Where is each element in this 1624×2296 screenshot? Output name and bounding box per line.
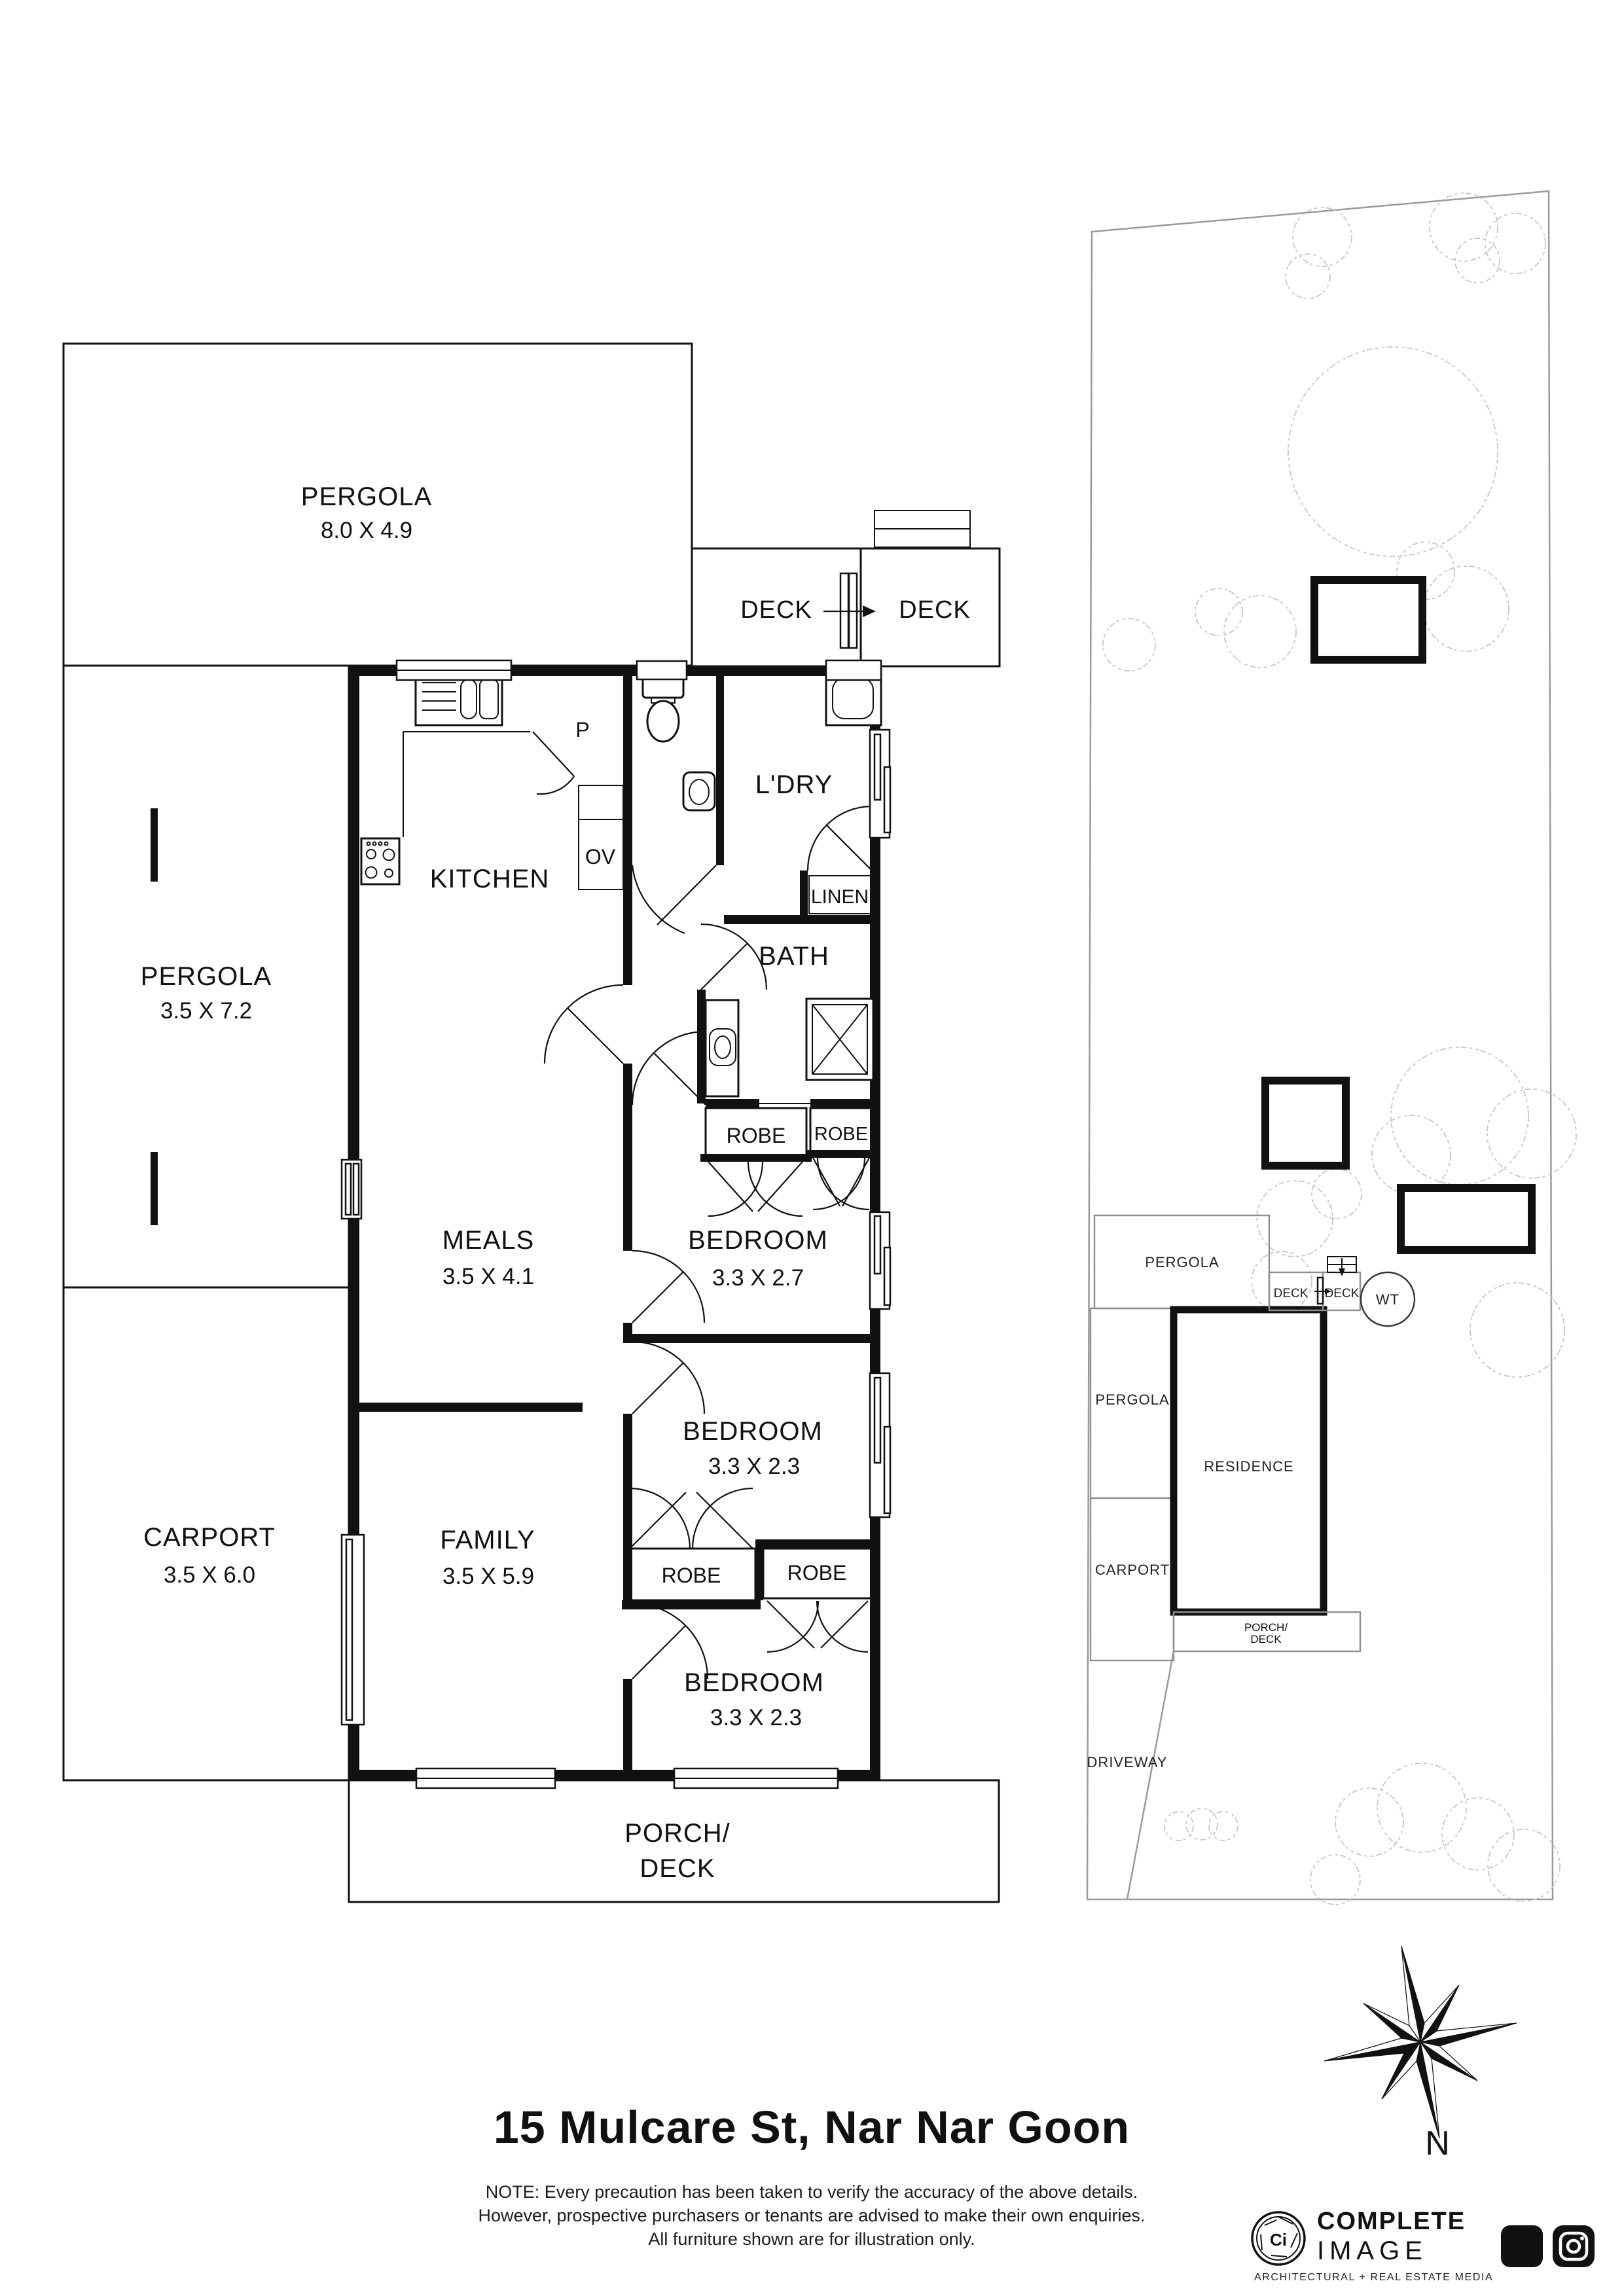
vanity-wall — [697, 990, 706, 1103]
site-deck-right-label: DECK — [1325, 1287, 1360, 1300]
bedroom3-label: BEDROOM — [684, 1668, 824, 1697]
window — [826, 660, 881, 680]
tree-canopy — [1470, 1283, 1564, 1377]
water-tank-label: WT — [1376, 1291, 1399, 1308]
pergola-left-dims: 3.5 X 7.2 — [160, 998, 252, 1024]
linen-label: LINEN — [811, 886, 869, 908]
tree-canopy — [1424, 566, 1509, 651]
carport-label: CARPORT — [143, 1523, 276, 1552]
lot-boundary — [1087, 191, 1553, 1899]
disclaimer-note: NOTE: Every precaution has been taken to… — [478, 2182, 1145, 2249]
sliding-window — [875, 1378, 880, 1463]
logo-brand-top: COMPLETE — [1317, 2208, 1466, 2235]
tree-canopy — [1335, 1788, 1403, 1856]
porch-label-line1: PORCH/ — [624, 1819, 731, 1848]
bedroom3-dims: 3.3 X 2.3 — [710, 1705, 802, 1731]
pantry-label: P — [575, 718, 589, 742]
laundry-label: L'DRY — [755, 770, 833, 799]
tree-canopy — [1487, 1089, 1576, 1178]
logo-monogram: Ci — [1270, 2230, 1287, 2250]
tree-canopy — [1377, 1763, 1466, 1852]
bedroom2-label: BEDROOM — [683, 1417, 823, 1446]
note-line-2: However, prospective purchasers or tenan… — [478, 2206, 1145, 2225]
pergola-post — [151, 1152, 158, 1225]
site-porch-label-line1: PORCH/ — [1244, 1621, 1288, 1634]
tree-canopy — [1372, 1115, 1451, 1194]
bedroom1-label: BEDROOM — [688, 1226, 828, 1255]
pergola-top-label: PERGOLA — [301, 482, 432, 511]
facebook-icon[interactable]: f — [1501, 2225, 1543, 2267]
north-label: N — [1425, 2125, 1450, 2162]
site-pergola-label: PERGOLA — [1095, 1391, 1169, 1408]
bath-robe-wall — [810, 1099, 880, 1108]
robe-base-wall — [806, 1150, 876, 1158]
logo-tagline: ARCHITECTURAL + REAL ESTATE MEDIA — [1254, 2272, 1493, 2283]
window — [637, 661, 687, 679]
site-pergola-top-label: PERGOLA — [1145, 1254, 1219, 1270]
deck-right-label: DECK — [899, 596, 971, 624]
tree-canopy — [1442, 1798, 1514, 1870]
tree-canopy — [1293, 207, 1352, 266]
linen-wall — [800, 870, 808, 920]
tree-canopy — [1286, 254, 1330, 298]
driveway-label: DRIVEWAY — [1087, 1754, 1168, 1770]
carport-dims: 3.5 X 6.0 — [164, 1562, 255, 1588]
sliding-window — [884, 1247, 890, 1305]
tree-canopy — [1257, 1181, 1333, 1257]
note-line-3: All furniture shown are for illustration… — [648, 2229, 975, 2249]
site-residence-label: RESIDENCE — [1204, 1458, 1293, 1475]
robe-label: ROBE — [662, 1564, 721, 1587]
sliding-window — [875, 1216, 880, 1274]
sliding-window — [875, 734, 880, 800]
sliding-window — [346, 1164, 351, 1215]
bath-label: BATH — [759, 942, 829, 971]
pergola-left-label: PERGOLA — [141, 962, 272, 991]
deck-arrow-icon — [863, 605, 876, 617]
tree-canopy — [1288, 347, 1498, 556]
meals-label: MEALS — [442, 1226, 535, 1255]
bedroom1-dims: 3.3 X 2.7 — [712, 1265, 804, 1291]
site-carport-strip — [1091, 1498, 1174, 1660]
tree-canopy — [1485, 213, 1545, 274]
sliding-window — [884, 1427, 890, 1513]
deck-left-label: DECK — [740, 596, 812, 624]
robe-top-wall — [755, 1539, 880, 1549]
carport-screen-line — [346, 1539, 352, 1720]
aperture-logo-icon: Ci — [1252, 2212, 1305, 2265]
robe-divider — [755, 1549, 763, 1600]
note-line-1: NOTE: Every precaution has been taken to… — [486, 2182, 1138, 2202]
tree-canopy — [1209, 1812, 1238, 1840]
spine-wall — [623, 1064, 632, 1251]
bedroom2-dims: 3.3 X 2.3 — [708, 1454, 800, 1479]
family-label: FAMILY — [440, 1526, 535, 1554]
site-porch-label-line2: DECK — [1250, 1633, 1282, 1645]
sliding-window — [353, 1164, 359, 1215]
spine-wall — [623, 1679, 632, 1780]
tree-canopy — [1103, 619, 1155, 671]
meals-family-wall — [349, 1403, 583, 1412]
tree-canopy — [1391, 1047, 1528, 1185]
site-carport-label: CARPORT — [1095, 1562, 1170, 1578]
page-title: 15 Mulcare St, Nar Nar Goon — [494, 2102, 1130, 2153]
tree-canopy — [1430, 193, 1498, 261]
bed1-bed2-wall — [623, 1334, 880, 1343]
compass-rose: N — [1324, 1946, 1517, 2162]
plan-canvas: PERGOLA 8.0 X 4.9 DECK DECK PERGOLA 3.5 … — [0, 0, 1624, 2296]
site-deck-left-label: DECK — [1274, 1287, 1308, 1300]
spine-wall — [623, 666, 632, 985]
house-outline — [354, 671, 875, 1775]
site-outbuilding — [1401, 1188, 1532, 1250]
site-outbuilding — [1265, 1081, 1346, 1166]
tree-canopy — [1224, 596, 1296, 668]
tree-canopy — [1252, 1251, 1312, 1312]
bath-robe-wall — [706, 1099, 759, 1108]
logo-brand-bottom: IMAGE — [1317, 2236, 1428, 2265]
site-outbuilding — [1314, 580, 1422, 660]
tree-canopy — [1455, 238, 1500, 283]
driveway-edge — [1127, 1651, 1174, 1899]
tree-canopy — [1195, 588, 1242, 636]
floorplan-page: PERGOLA 8.0 X 4.9 DECK DECK PERGOLA 3.5 … — [0, 0, 1624, 2296]
robe-label: ROBE — [727, 1124, 786, 1147]
pergola-post — [151, 808, 158, 882]
robe-base-wall — [700, 1154, 812, 1162]
wc-wall — [716, 666, 724, 865]
floor-plan: PERGOLA 8.0 X 4.9 DECK DECK PERGOLA 3.5 … — [63, 344, 1000, 1902]
kitchen-label: KITCHEN — [430, 865, 550, 893]
site-plan: PERGOLA DECK DECK WT PERGOLA RESIDENCE C… — [1087, 191, 1576, 1905]
meals-dims: 3.5 X 4.1 — [442, 1264, 534, 1289]
oven-label: OV — [585, 845, 616, 869]
tree-canopy — [1186, 1808, 1218, 1840]
brand-logo: Ci COMPLETE IMAGE ARCHITECTURAL + REAL E… — [1252, 2208, 1595, 2283]
robe-label: ROBE — [787, 1561, 847, 1585]
robe-label: ROBE — [814, 1124, 868, 1145]
instagram-icon[interactable] — [1553, 2225, 1595, 2267]
sliding-window — [884, 767, 890, 833]
toilet-bowl-icon — [647, 701, 679, 742]
pergola-top-dims: 8.0 X 4.9 — [321, 518, 412, 543]
svg-text:f: f — [1519, 2232, 1530, 2267]
tree-canopy — [1488, 1829, 1560, 1901]
family-dims: 3.5 X 5.9 — [442, 1564, 534, 1589]
porch-label-line2: DECK — [640, 1854, 715, 1883]
bath-vanity — [706, 1000, 738, 1096]
tree-canopy — [1312, 1169, 1362, 1219]
tree-canopy — [1310, 1855, 1360, 1905]
